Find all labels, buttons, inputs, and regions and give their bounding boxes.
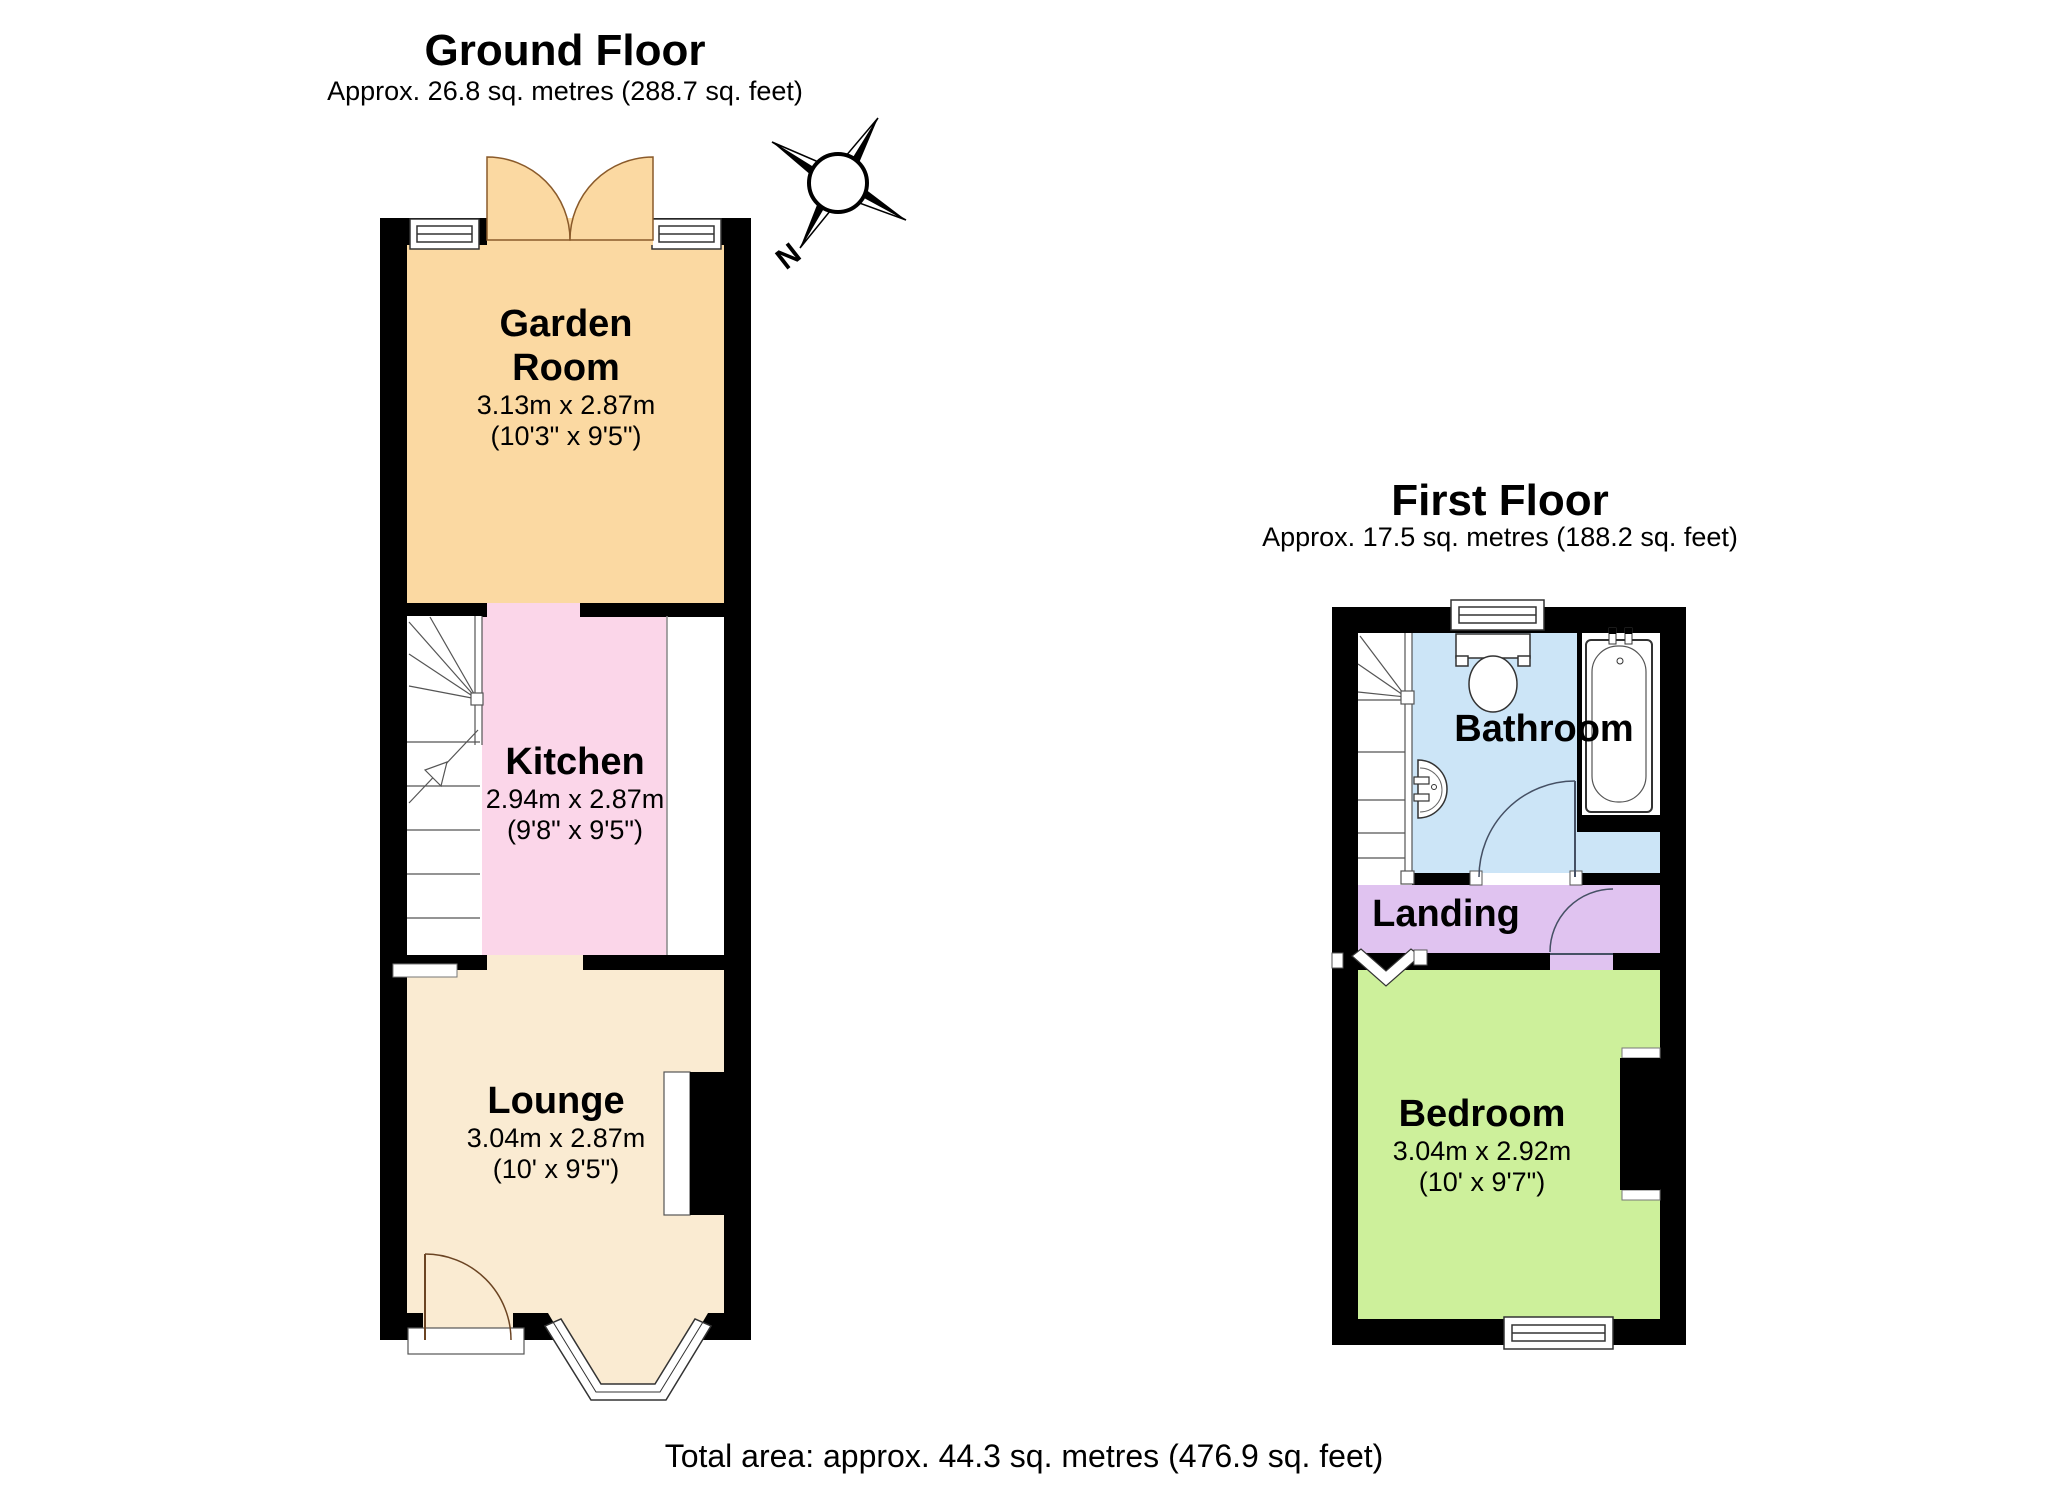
ground-floor-title: Ground Floor (424, 26, 705, 76)
understair-step (393, 964, 457, 977)
bedroom-chimney-breast (1620, 1048, 1660, 1200)
bay-window (545, 1313, 711, 1400)
bedroom-label: Bedroom 3.04m x 2.92m (10' x 9'7") (1393, 1092, 1572, 1198)
lounge-dims-metric: 3.04m x 2.87m (467, 1123, 646, 1154)
garden-room-window-left (410, 219, 479, 249)
floorplan-drawing (0, 0, 2048, 1489)
bedroom-doorway-opening (1550, 953, 1613, 970)
garden-room-label: Garden Room 3.13m x 2.87m (10'3" x 9'5") (477, 302, 656, 452)
lounge-doorway-opening (487, 955, 583, 970)
lounge-chimney-breast (664, 1072, 724, 1215)
first-floor-stairs (1358, 633, 1414, 884)
newel-post (471, 693, 483, 705)
bedroom-window (1504, 1317, 1613, 1349)
bedroom-dims-imperial: (10' x 9'7") (1393, 1167, 1572, 1198)
first-floor-subtitle: Approx. 17.5 sq. metres (188.2 sq. feet) (1262, 522, 1738, 553)
lounge-dims-imperial: (10' x 9'5") (467, 1154, 646, 1185)
bedroom-dims-metric: 3.04m x 2.92m (1393, 1136, 1572, 1167)
lounge-name: Lounge (467, 1079, 646, 1123)
bathroom-label: Bathroom (1454, 707, 1633, 751)
garden-room-dims-imperial: (10'3" x 9'5") (477, 421, 656, 452)
landing-name: Landing (1372, 892, 1520, 936)
bedroom-name: Bedroom (1393, 1092, 1572, 1136)
first-floor-title: First Floor (1391, 476, 1609, 526)
garden-room-dims-metric: 3.13m x 2.87m (477, 390, 656, 421)
kitchen-label: Kitchen 2.94m x 2.87m (9'8" x 9'5") (486, 740, 665, 846)
newel-post (1401, 871, 1414, 884)
bathroom-window (1451, 600, 1544, 630)
ground-floor-subtitle: Approx. 26.8 sq. metres (288.7 sq. feet) (327, 76, 803, 107)
compass-rose (772, 118, 906, 248)
kitchen-dims-imperial: (9'8" x 9'5") (486, 815, 665, 846)
landing-label: Landing (1372, 892, 1520, 936)
floorplan-page: Ground Floor Approx. 26.8 sq. metres (28… (0, 0, 2048, 1489)
bathroom-name: Bathroom (1454, 707, 1633, 751)
newel-post (1401, 691, 1414, 704)
compass-circle (809, 154, 867, 212)
kitchen-dims-metric: 2.94m x 2.87m (486, 784, 665, 815)
garden-room-name: Garden Room (477, 302, 656, 390)
kitchen-doorway-opening (487, 603, 580, 617)
total-area-text: Total area: approx. 44.3 sq. metres (476… (665, 1438, 1384, 1475)
french-doors (487, 157, 653, 245)
lounge-label: Lounge 3.04m x 2.87m (10' x 9'5") (467, 1079, 646, 1185)
kitchen-name: Kitchen (486, 740, 665, 784)
garden-room-window-right (652, 219, 721, 249)
